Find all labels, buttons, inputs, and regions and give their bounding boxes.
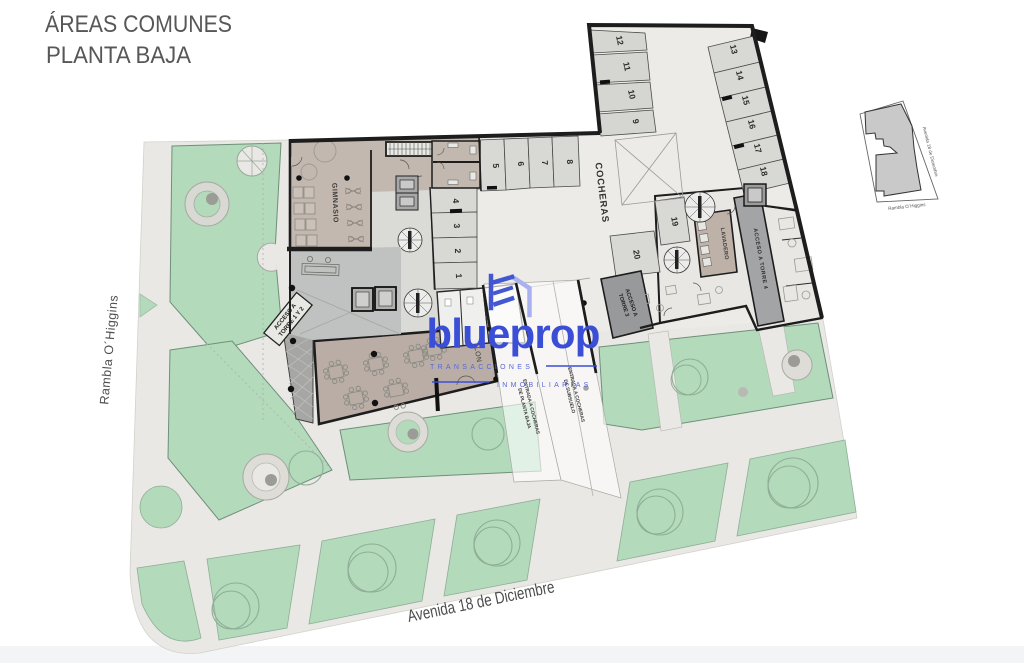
svg-text:INMOBILIARIAS: INMOBILIARIAS	[497, 382, 592, 389]
svg-text:19: 19	[669, 216, 681, 227]
svg-text:8: 8	[565, 159, 575, 165]
svg-text:ÁREAS COMUNES: ÁREAS COMUNES	[45, 11, 232, 38]
svg-text:20: 20	[631, 249, 643, 260]
svg-text:blueprop: blueprop	[426, 310, 599, 357]
svg-text:6: 6	[516, 161, 526, 167]
svg-text:TRANSACCIONES: TRANSACCIONES	[430, 364, 533, 371]
svg-text:2: 2	[453, 248, 463, 253]
svg-text:3: 3	[452, 223, 462, 228]
svg-text:1: 1	[454, 273, 464, 278]
svg-text:7: 7	[540, 160, 550, 166]
svg-text:Rambla O´Higgins: Rambla O´Higgins	[97, 294, 121, 405]
svg-text:PLANTA BAJA: PLANTA BAJA	[46, 42, 191, 69]
svg-text:4: 4	[451, 198, 461, 203]
svg-text:5: 5	[491, 163, 501, 169]
svg-text:GIMNASIO: GIMNASIO	[330, 183, 338, 223]
svg-text:Rambla O´Higgins: Rambla O´Higgins	[888, 202, 927, 211]
